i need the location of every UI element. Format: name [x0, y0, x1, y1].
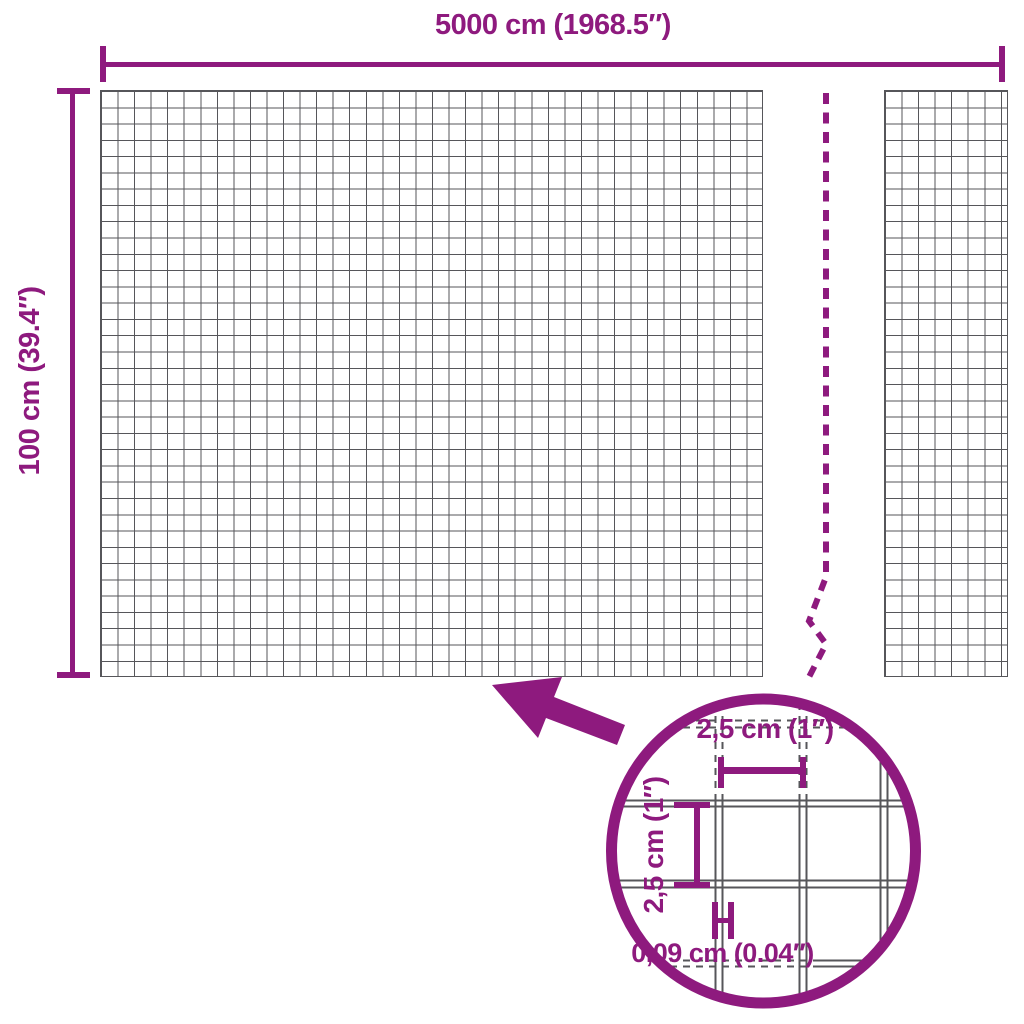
cell-width-cap-right: [800, 757, 806, 788]
zoom-arrow-icon: [492, 677, 625, 745]
mesh-panel-right: [884, 90, 1008, 677]
cell-height-cap-bottom: [674, 882, 710, 888]
height-dimension-line: [70, 90, 75, 676]
width-dimension-cap-left: [100, 46, 106, 82]
wire-thickness-marker: [712, 918, 734, 923]
cell-height-cap-top: [674, 802, 710, 808]
width-dimension-cap-right: [999, 46, 1005, 82]
width-dimension-label: 5000 cm (1968.5″): [333, 10, 773, 42]
wire-thickness-label: 0,09 cm (0.04″): [595, 939, 850, 967]
height-dimension-cap-bottom: [57, 672, 90, 678]
mesh-panel-left: [100, 90, 763, 677]
cell-width-dimension-line: [721, 767, 806, 774]
height-dimension-cap-top: [57, 88, 90, 94]
cell-height-dimension-line: [694, 806, 700, 884]
height-dimension-label: 100 cm (39.4″): [15, 271, 45, 491]
cell-width-label: 2,5 cm (1″): [645, 714, 885, 743]
cell-width-cap-left: [718, 757, 724, 788]
width-dimension-line: [100, 62, 1005, 67]
cell-height-label: 2,5 cm (1″): [639, 750, 665, 940]
break-line-icon: [808, 93, 826, 679]
product-dimension-diagram: 5000 cm (1968.5″) 100 cm (39.4″): [0, 0, 1024, 1024]
